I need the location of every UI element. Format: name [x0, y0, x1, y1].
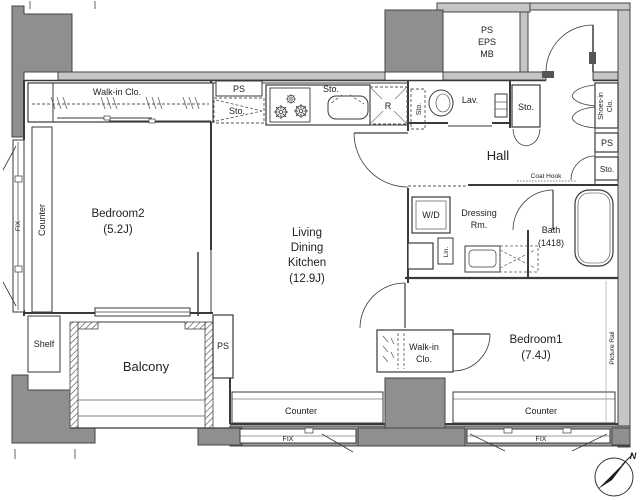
- fix-bedroom1-label: FIX: [536, 436, 547, 443]
- counter-ldk-label: Counter: [285, 406, 317, 416]
- shaft-l2: EPS: [478, 37, 496, 47]
- linen-label: Lin.: [443, 247, 450, 258]
- bedroom2-name: Bedroom2: [91, 208, 144, 220]
- toilet-icon: [429, 90, 453, 116]
- closet-door: [453, 334, 490, 371]
- ldk-l1: Living: [292, 227, 322, 239]
- hall-ldk-door: [354, 133, 408, 187]
- counter-bedroom1-label: Counter: [525, 406, 557, 416]
- fix-window-ldk: [240, 428, 356, 452]
- bedroom2-size: (5.2J): [103, 224, 133, 236]
- bifold-door-icon: [572, 85, 595, 128]
- shoes-in-l1: Shoes-in: [598, 92, 605, 120]
- shaft-l3: MB: [480, 49, 494, 59]
- hall-storage: [512, 85, 540, 146]
- balcony-window-bedroom2: [95, 308, 190, 316]
- ldk-size: (12.9J): [289, 273, 325, 285]
- ldk-l2: Dining: [291, 242, 324, 254]
- lav-label: Lav.: [462, 95, 478, 105]
- coat-hook-label: Coat Hook: [531, 173, 562, 180]
- fix-left-label: FIX: [15, 220, 22, 231]
- compass-icon: [595, 454, 633, 496]
- dressing-l2: Rm.: [471, 220, 488, 230]
- washer-label: W/D: [422, 210, 440, 220]
- sto-box-dressing: [408, 243, 433, 269]
- floor-plan-drawing: Walk-in Clo. PS Sto. Sto. R Sto. Lav. PS…: [0, 0, 640, 500]
- bedroom1-size: (7.4J): [521, 350, 551, 362]
- sto-hall-right-label: Sto.: [600, 165, 614, 174]
- sto-hall-label: Sto.: [518, 102, 534, 112]
- ps-kitchen-label: PS: [233, 84, 245, 94]
- shelf-label: Shelf: [34, 339, 55, 349]
- sto-sink-label: Sto.: [323, 84, 339, 94]
- ps-hall-label: PS: [601, 138, 613, 148]
- bedroom1-name: Bedroom1: [509, 334, 562, 346]
- walkin-bedroom1-l2: Clo.: [416, 354, 432, 364]
- floor-plan: Walk-in Clo. PS Sto. Sto. R Sto. Lav. PS…: [0, 0, 640, 500]
- shaft-l1: PS: [481, 25, 493, 35]
- sink-icon: [328, 95, 368, 119]
- sto-lav-label: Sto.: [416, 103, 423, 116]
- fridge-label: R: [385, 101, 392, 111]
- ldk-bedroom1-door: [360, 283, 405, 328]
- north-label: N: [630, 451, 637, 461]
- bath-door: [513, 190, 553, 230]
- sto-kitchen-label: Sto.: [229, 106, 245, 116]
- washlet-counter-icon: [495, 94, 507, 117]
- stove-icon: [270, 88, 310, 122]
- walkin-bedroom2-label: Walk-in Clo.: [93, 87, 141, 97]
- hall-label: Hall: [487, 148, 510, 163]
- ldk-l3: Kitchen: [288, 257, 326, 269]
- bath-size: (1418): [538, 238, 564, 248]
- dressing-l1: Dressing: [461, 208, 497, 218]
- bath-name: Bath: [542, 225, 561, 235]
- bathtub-icon: [575, 190, 613, 266]
- walkin-bedroom1-l1: Walk-in: [409, 342, 439, 352]
- balcony-label: Balcony: [123, 359, 170, 374]
- ps-balcony-label: PS: [217, 341, 229, 351]
- fix-ldk-label: FIX: [283, 436, 294, 443]
- shoes-in-l2: Clo.: [607, 100, 614, 113]
- picture-rail-label: Picture Rail: [609, 331, 616, 365]
- entrance-door: [542, 25, 596, 78]
- counter-bedroom2-label: Counter: [37, 204, 47, 236]
